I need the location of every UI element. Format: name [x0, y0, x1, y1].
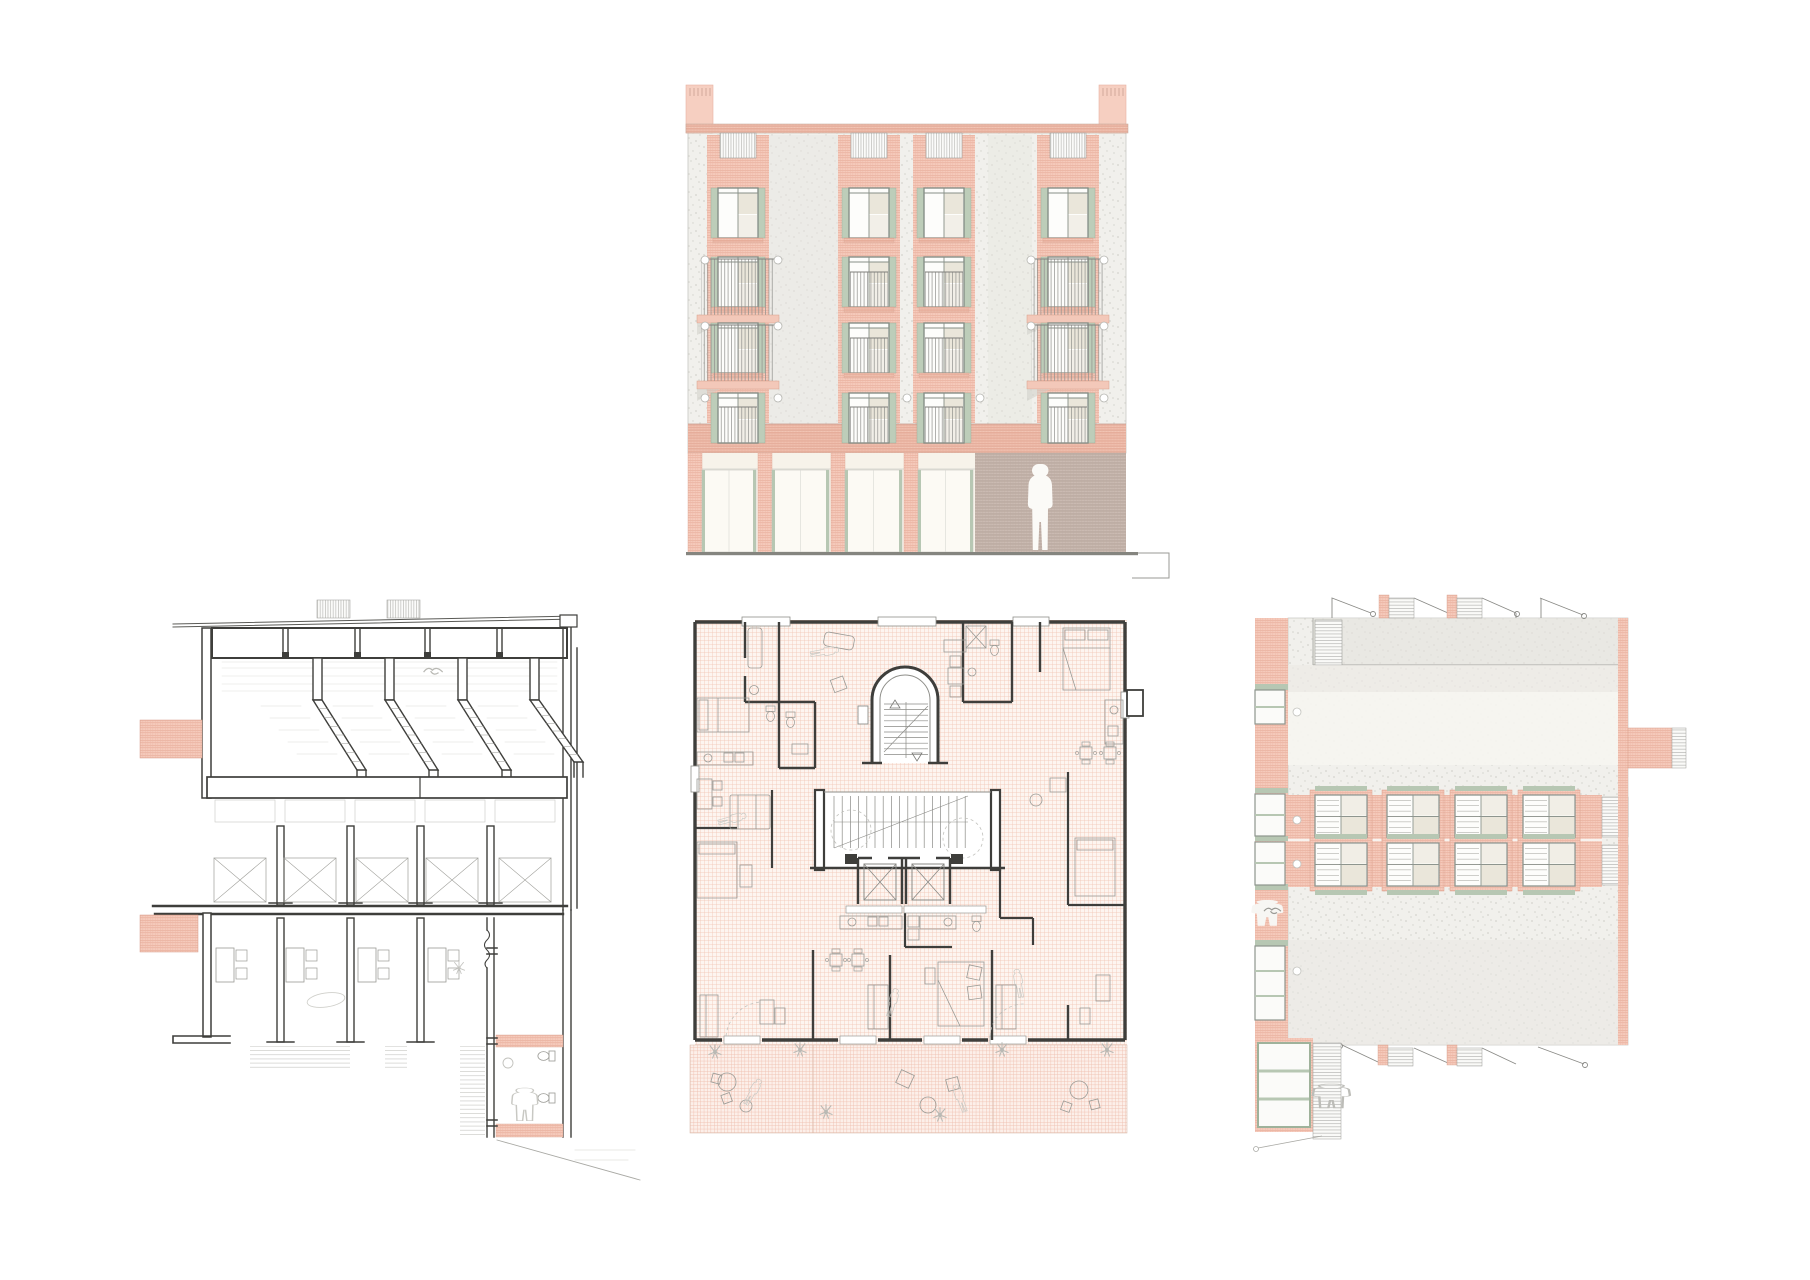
- hatch-strip: [1313, 1043, 1341, 1139]
- stair-wall-lower: [357, 770, 366, 777]
- glass-shade: [1413, 844, 1438, 864]
- skylight-trim-bottom: [1455, 890, 1507, 895]
- shutter-right: [964, 323, 971, 373]
- person-outline: [512, 1088, 538, 1121]
- brick-sill: [496, 1124, 563, 1137]
- glass-shade: [1413, 865, 1438, 886]
- transom-panel: [215, 800, 275, 822]
- door-stub: [282, 652, 289, 658]
- rooftop-vent: [387, 600, 420, 618]
- facade-tie-circle: [1027, 256, 1035, 264]
- stair-wall: [458, 658, 467, 700]
- shaft-block: [951, 854, 963, 864]
- brick-sill: [713, 238, 763, 243]
- glass-shade: [1481, 817, 1506, 838]
- facade-tie-circle: [701, 322, 709, 330]
- room-partition-lower: [417, 918, 424, 1042]
- glass-shade: [1549, 844, 1574, 864]
- lift-threshold: [904, 906, 986, 913]
- roof-plan-drawing: [1251, 595, 1686, 1152]
- roller-blind-box: [851, 133, 887, 158]
- front-elevation-drawing: [686, 85, 1169, 578]
- staircase-plan-drawing: [140, 600, 640, 1180]
- storefront-mullion: [772, 470, 775, 552]
- glass-shade: [1481, 865, 1506, 886]
- x: [502, 770, 511, 777]
- roof-ladder-hatch: [1315, 620, 1342, 665]
- roof-tone-band: [1288, 692, 1628, 765]
- base-step: [1126, 553, 1169, 578]
- glass-shade: [1341, 817, 1366, 838]
- facade-tie-circle: [774, 322, 782, 330]
- door-stub: [424, 652, 431, 658]
- chair-glyph: [378, 968, 389, 979]
- lower-window-block: [1254, 1038, 1350, 1152]
- right-walls: [563, 628, 577, 910]
- toilet-glyph: [538, 1093, 555, 1103]
- window-lintel: [878, 617, 936, 626]
- roof-line: [173, 616, 577, 627]
- roller-blind-box: [926, 133, 962, 158]
- storefront-mullion: [845, 470, 848, 552]
- glass-shade: [738, 215, 757, 237]
- brick-sill: [844, 307, 894, 312]
- stair-wall-lower: [429, 770, 438, 777]
- fixture-circle: [503, 1058, 513, 1068]
- chair-glyph: [236, 950, 247, 961]
- storefront-pier: [904, 453, 918, 553]
- stair-wall-lower: [502, 770, 511, 777]
- door-stub: [354, 652, 361, 658]
- brick-balcony: [140, 915, 198, 952]
- ground-railing: [719, 407, 757, 443]
- shutter-right: [889, 393, 896, 443]
- shutter-left: [842, 257, 849, 307]
- glass-shade: [1549, 817, 1574, 838]
- facade-tie-circle: [701, 256, 709, 264]
- skylight-trim-top: [1523, 786, 1575, 791]
- glass-shade: [944, 215, 963, 237]
- stair-wall: [530, 658, 539, 700]
- juliet-railing: [850, 338, 888, 373]
- roof-tie-circle: [1293, 967, 1301, 975]
- storefront-mullion: [918, 470, 921, 552]
- desk-glyph: [428, 948, 446, 982]
- glass-shade: [869, 215, 888, 237]
- faint-ground-lines: [575, 1150, 635, 1160]
- door-threshold: [724, 1036, 760, 1044]
- facade-tie-circle: [1100, 322, 1108, 330]
- parapet-band: [686, 124, 1128, 133]
- stair-wall-lower: [574, 762, 583, 777]
- room-partition: [417, 826, 424, 905]
- door-threshold: [840, 1036, 876, 1044]
- shutter-left: [1041, 188, 1048, 238]
- storefront-mullion: [753, 470, 756, 552]
- skylight-trim-bottom: [1523, 890, 1575, 895]
- stair-wall: [385, 658, 394, 700]
- bird-silhouette: [424, 668, 442, 674]
- shutter-right: [889, 188, 896, 238]
- room-partition-lower: [347, 918, 354, 1042]
- brick-sill: [919, 307, 969, 312]
- upper-cell-row: [212, 628, 567, 658]
- balcony-slab: [697, 381, 779, 389]
- brick-sill: [1043, 238, 1093, 243]
- glass-shade: [944, 193, 963, 214]
- facade-tie-circle: [774, 256, 782, 264]
- shutter-left: [917, 393, 924, 443]
- storefront: [688, 453, 1126, 553]
- shutter-left: [842, 188, 849, 238]
- facade-tie-circle: [701, 394, 709, 402]
- brick-sill: [919, 238, 969, 243]
- glass-shade: [1549, 796, 1574, 816]
- shutter-left: [711, 188, 718, 238]
- rooftop-vent: [317, 600, 350, 618]
- step-wall: [173, 1036, 230, 1043]
- balcony-hatch: [1672, 728, 1686, 768]
- glass-shade: [1413, 796, 1438, 816]
- chair-glyph: [448, 950, 459, 961]
- window-lintel: [1013, 617, 1049, 626]
- facade-strip: [1251, 618, 1288, 1045]
- shutter-right: [758, 188, 765, 238]
- typical-floor-plan-drawing: [690, 617, 1143, 1133]
- door-latches: [487, 948, 497, 1126]
- shutter-left: [842, 393, 849, 443]
- chair-glyph: [306, 950, 317, 961]
- shutter-right: [964, 393, 971, 443]
- projecting-balcony: [1628, 728, 1672, 768]
- floor-slab-walls: [153, 906, 567, 914]
- glass-shade: [738, 193, 757, 214]
- chair-glyph: [448, 968, 459, 979]
- facade-tie-circle: [1100, 394, 1108, 402]
- skylight-trim-top: [1523, 834, 1575, 839]
- glass-shade: [869, 193, 888, 214]
- balcony-railing: [1031, 259, 1105, 315]
- skylight-trim-bottom: [1387, 890, 1439, 895]
- terrace-tiles: [690, 1045, 1127, 1133]
- ground-railing: [850, 407, 888, 443]
- shutter-left: [842, 323, 849, 373]
- shutter-right: [1088, 393, 1095, 443]
- roof-tone-band: [1288, 940, 1628, 1045]
- room-partition: [277, 826, 284, 905]
- shutter-right: [758, 393, 765, 443]
- bed-cross: [214, 858, 266, 902]
- shutter-right: [889, 257, 896, 307]
- glass-shade: [1549, 865, 1574, 886]
- floor-hatch: [250, 1046, 350, 1068]
- shutter-left: [917, 257, 924, 307]
- shutter-left: [1041, 393, 1048, 443]
- corridor-band: [207, 777, 567, 798]
- slope-line: [1258, 1136, 1322, 1148]
- left-wall: [202, 628, 211, 798]
- x: [429, 770, 438, 777]
- bed-cross: [356, 858, 408, 902]
- skylight-trim-top: [1315, 834, 1367, 839]
- skylight-trim-top: [1387, 834, 1439, 839]
- storefront-mullion: [899, 470, 902, 552]
- brick-parapet-right: [1618, 618, 1628, 1045]
- juliet-railing: [925, 272, 963, 307]
- glass-shade: [1068, 215, 1087, 237]
- balcony-railing: [1031, 325, 1105, 381]
- railing-panel: [1457, 1048, 1482, 1066]
- skylight-trim-bottom: [1315, 890, 1367, 895]
- brick-sill: [919, 373, 969, 378]
- desk-glyph: [358, 948, 376, 982]
- shutter-left: [917, 188, 924, 238]
- large-window: [1258, 1043, 1310, 1127]
- ground-line: [686, 552, 1138, 555]
- person-lying-silhouette: [306, 990, 346, 1009]
- roof-inset: [1313, 618, 1628, 665]
- parapet-cap: [560, 615, 577, 627]
- juliet-railing: [850, 272, 888, 307]
- chair-glyph: [236, 968, 247, 979]
- transom-panel: [425, 800, 485, 822]
- roof-tone-band: [1288, 665, 1628, 692]
- bed-cross: [499, 858, 551, 902]
- railing-pier: [1379, 595, 1389, 618]
- door-stub: [496, 652, 503, 658]
- shutter-left: [711, 393, 718, 443]
- toilet-glyph: [538, 1051, 555, 1061]
- stair-wall: [313, 658, 322, 700]
- glass-shade: [1481, 796, 1506, 816]
- render-tone-band: [988, 135, 1032, 425]
- facade-tie-circle: [976, 394, 984, 402]
- balcony-slab: [1027, 315, 1109, 323]
- chair-glyph: [378, 950, 389, 961]
- shaft-block: [845, 854, 857, 864]
- door-threshold: [990, 1036, 1026, 1044]
- storefront-pier: [831, 453, 845, 553]
- roof-tie-circle: [1293, 816, 1301, 824]
- skylight-trim-top: [1455, 786, 1507, 791]
- bed-cross: [284, 858, 336, 902]
- glass-shade: [1341, 865, 1366, 886]
- transom-panel: [495, 800, 555, 822]
- window-lintel: [742, 617, 790, 626]
- storefront-pier: [758, 453, 772, 553]
- ground-railing: [1049, 407, 1087, 443]
- skylight-trim-top: [1315, 786, 1367, 791]
- door-threshold: [924, 1036, 960, 1044]
- facade-tie-circle: [1100, 256, 1108, 264]
- x: [357, 770, 366, 777]
- room-partition: [347, 826, 354, 905]
- chair-glyph: [306, 968, 317, 979]
- shutter-right: [889, 323, 896, 373]
- roller-blind-box: [720, 133, 756, 158]
- architectural-drawing-sheet: [0, 0, 1810, 1280]
- strip-window: [1255, 946, 1285, 1020]
- roof-tie-circle: [1293, 860, 1301, 868]
- railing-panel: [1457, 598, 1482, 618]
- storefront-mullion: [970, 470, 973, 552]
- juliet-railing: [925, 338, 963, 373]
- lift-threshold: [846, 906, 902, 913]
- bed-cross: [426, 858, 478, 902]
- facade-bump: [1127, 690, 1143, 716]
- room-partition-lower: [277, 918, 284, 1042]
- balcony-slab: [1027, 381, 1109, 389]
- facade-tie-circle: [774, 394, 782, 402]
- balcony-railing: [701, 325, 775, 381]
- glass-shade: [1481, 844, 1506, 864]
- transom-panel: [355, 800, 415, 822]
- left-wall-lower: [203, 913, 211, 1037]
- railing-panel: [1389, 598, 1414, 618]
- floor-hatch: [385, 1046, 407, 1068]
- railing-pier: [1447, 1045, 1457, 1065]
- transom-panel: [285, 800, 345, 822]
- roof-tie-circle: [1293, 708, 1301, 716]
- glass-shade: [1341, 796, 1366, 816]
- facade-tie-circle: [903, 394, 911, 402]
- shutter-right: [964, 188, 971, 238]
- shutter-right: [964, 257, 971, 307]
- ground-railing: [925, 407, 963, 443]
- duct: [858, 706, 868, 724]
- x: [574, 762, 583, 777]
- desk-glyph: [286, 948, 304, 982]
- corridor-walls: [487, 910, 571, 1137]
- glass-shade: [1341, 844, 1366, 864]
- balcony-slab: [697, 315, 779, 323]
- balcony-railing: [701, 259, 775, 315]
- brick-sill: [496, 1035, 563, 1047]
- glass-shade: [1068, 193, 1087, 214]
- shutter-left: [917, 323, 924, 373]
- break-line: [485, 930, 490, 968]
- desk-glyph: [216, 948, 234, 982]
- shutter-right: [1088, 188, 1095, 238]
- roller-blind-box: [1050, 133, 1086, 158]
- stair-hatch: [460, 1046, 485, 1136]
- railing-panel: [1388, 1048, 1413, 1066]
- railing-pier: [1378, 1045, 1388, 1065]
- storefront-pier: [688, 453, 702, 553]
- storefront-mullion: [702, 470, 705, 552]
- brick-sill: [844, 373, 894, 378]
- brick-sill: [844, 238, 894, 243]
- brick-balcony: [140, 720, 202, 758]
- skylight-trim-top: [1455, 834, 1507, 839]
- glass-shade: [1413, 817, 1438, 838]
- skylight-trim-top: [1387, 786, 1439, 791]
- room-partition: [487, 826, 494, 905]
- storefront-mullion: [826, 470, 829, 552]
- facade-tie-circle: [1027, 322, 1035, 330]
- railing-pier: [1447, 595, 1457, 618]
